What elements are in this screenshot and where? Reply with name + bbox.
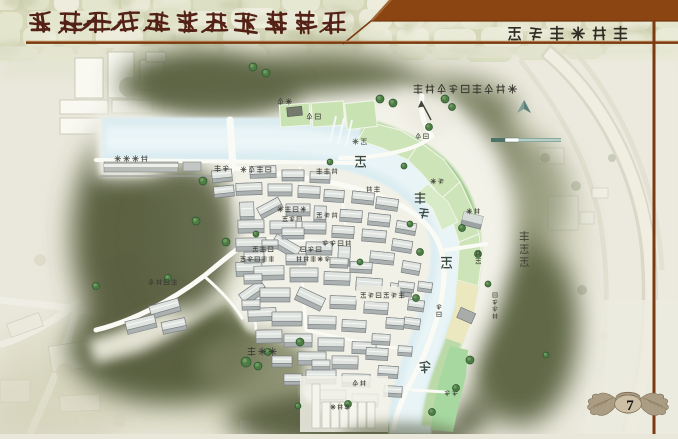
svg-text:7: 7	[626, 398, 634, 414]
